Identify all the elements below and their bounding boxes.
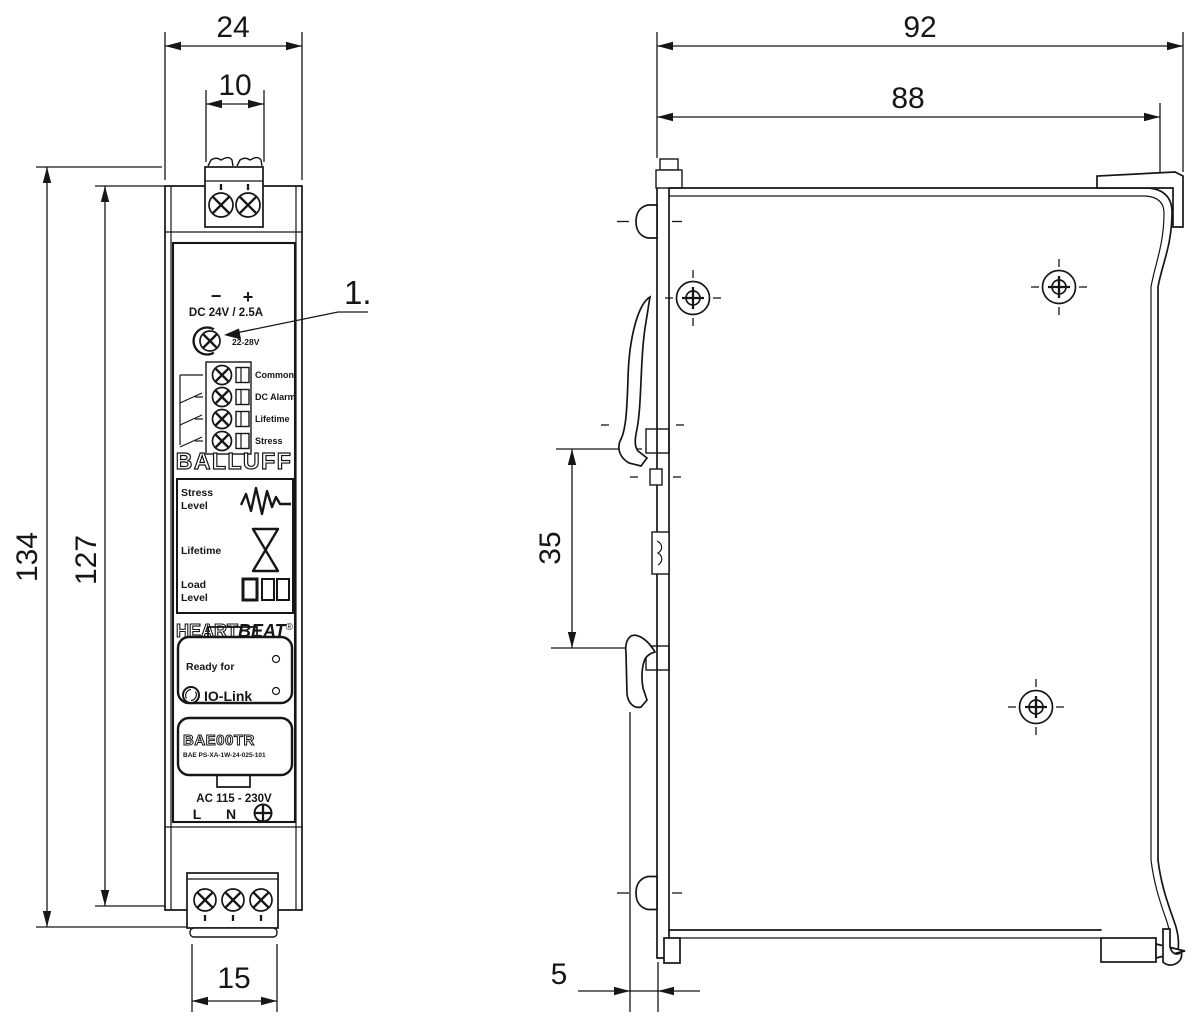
side-view: 92 88 35 5 — [534, 11, 1185, 1012]
terminal-lip — [190, 928, 277, 937]
dim-clip-protrusion: 5 — [551, 958, 568, 991]
indicator-legend-box: Stress Level Lifetime Load Level — [177, 479, 293, 613]
din-clip-lower-arm — [626, 635, 655, 707]
housing-outline — [669, 188, 1178, 957]
relay-label-dc-alarm: DC Alarm — [255, 392, 296, 402]
lifetime-label: Lifetime — [181, 545, 221, 557]
front-panel-print: − + DC 24V / 2.5A 22-28V — [176, 286, 296, 822]
stress-level-label: Stress — [181, 487, 213, 499]
load-level-icon — [243, 579, 289, 600]
din-clip-latch — [650, 469, 662, 485]
bottom-terminal-screw — [250, 889, 272, 911]
dim-height-overall: 134 — [11, 532, 44, 582]
drawing-canvas: 24 10 134 127 — [0, 0, 1200, 1028]
relay-label-common: Common — [255, 370, 294, 380]
dim-width-terminal: 10 — [218, 69, 251, 102]
iolink-logo-icon — [183, 687, 199, 703]
dim-height-body: 127 — [70, 535, 103, 585]
ac-input-rating: AC 115 - 230V — [196, 793, 272, 805]
din-clip-spring — [652, 532, 669, 574]
relay-label-lifetime: Lifetime — [255, 414, 290, 424]
dim-width-bottom-terminal: 15 — [217, 962, 250, 995]
side-dimensions: 92 88 35 5 — [534, 11, 1183, 1012]
indicator-dot — [273, 656, 280, 663]
mounting-mark — [1031, 259, 1087, 315]
stress-level-label2: Level — [181, 500, 208, 512]
dim-depth-overall: 92 — [903, 11, 936, 44]
mounting-mark — [665, 270, 721, 326]
model-box: BAE00TR BAE PS-XA-1W-24-025-101 — [178, 718, 292, 787]
top-terminal-screw — [236, 193, 260, 217]
bottom-terminal-block — [187, 873, 278, 937]
side-top-terminal-screw — [656, 159, 682, 188]
indicator-dot — [273, 688, 280, 695]
polarity-minus: − — [211, 286, 222, 306]
polarity-plus: + — [243, 287, 254, 307]
model-number: BAE00TR — [183, 732, 255, 749]
terminal-n-label: N — [226, 806, 236, 822]
protective-earth-icon — [255, 805, 272, 822]
rear-mount-tab-bottom — [1101, 929, 1185, 965]
terminal-l-label: L — [193, 806, 202, 822]
hourglass-icon — [253, 529, 278, 571]
relay-contact-symbol — [180, 375, 203, 447]
front-view: 24 10 134 127 — [11, 11, 372, 1012]
bottom-foot — [664, 938, 680, 963]
dim-depth-housing: 88 — [891, 82, 924, 115]
stress-waveform-icon — [241, 488, 291, 514]
side-screw-head-top — [617, 205, 682, 238]
load-level-label: Load — [181, 579, 206, 591]
dim-width-overall: 24 — [216, 11, 249, 44]
side-device — [601, 159, 1185, 965]
iolink-label: IO-Link — [204, 688, 252, 704]
bottom-terminal-screw — [222, 889, 244, 911]
bottom-terminal-screw — [194, 889, 216, 911]
balluff-logo: BALLUFF — [176, 448, 293, 474]
voltage-adjust-range: 22-28V — [232, 337, 260, 347]
relay-label-stress: Stress — [255, 436, 283, 446]
top-terminal-screw — [209, 193, 233, 217]
dim-din-rail-slot: 35 — [534, 531, 567, 564]
callout-1-label: 1. — [344, 274, 372, 311]
dc-output-rating: DC 24V / 2.5A — [189, 307, 263, 319]
mounting-mark — [1008, 679, 1064, 735]
ready-for-label: Ready for — [186, 661, 234, 673]
dimensional-drawing: 24 10 134 127 — [0, 0, 1200, 1028]
top-terminal-block — [205, 158, 263, 227]
load-level-label2: Level — [181, 592, 208, 604]
part-number: BAE PS-XA-1W-24-025-101 — [183, 752, 266, 759]
voltage-adjust-potentiometer[interactable] — [194, 327, 220, 354]
side-screw-head-bottom — [617, 877, 682, 910]
relay-output-terminal-block — [206, 362, 251, 454]
